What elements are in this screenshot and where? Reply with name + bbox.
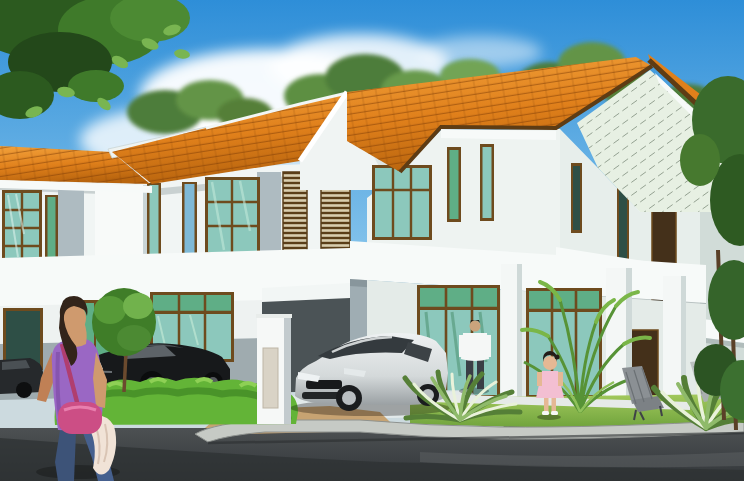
transom-glass (420, 288, 497, 307)
pilaster (58, 184, 84, 262)
girl-shoe (551, 411, 558, 415)
edge-car-wheel (16, 382, 32, 398)
girl-shoe (542, 411, 549, 415)
tree-canopy (680, 134, 720, 186)
gate-pillar: White gate pillar (256, 314, 292, 424)
sapling-trunk (124, 352, 126, 392)
man-arm (486, 335, 491, 357)
sapling-foliage (94, 296, 126, 324)
girl-leg (552, 396, 557, 412)
window-glass (48, 197, 56, 260)
girl-arm (558, 372, 563, 386)
silver-car-grille (306, 380, 342, 389)
man-arm (459, 335, 464, 357)
girl-hair-bun (555, 355, 560, 360)
window-glass (573, 166, 580, 230)
window-glass (483, 147, 492, 218)
window-glass (450, 150, 459, 219)
sapling-foliage (117, 325, 151, 351)
pillar-side (284, 318, 291, 424)
man-head (470, 321, 481, 332)
pilaster (257, 172, 281, 252)
blank-panel (95, 185, 147, 263)
sapling-foliage (123, 293, 153, 319)
man-shirt (461, 333, 489, 361)
pillar-cap (256, 314, 292, 318)
panel-shadow (143, 185, 147, 263)
rendering-canvas: Blue sky with scattered white clouds Whi… (0, 0, 744, 481)
edge-car: Dark car at the left edge (0, 358, 43, 398)
silver-car-alloy (342, 391, 356, 405)
girl-arm (537, 372, 542, 386)
figure-shadow (537, 414, 561, 420)
transom-glass (529, 291, 599, 309)
tree-foliage (68, 70, 124, 102)
window-glass (150, 185, 159, 255)
pillar-panel (263, 348, 278, 408)
window-glass (375, 168, 429, 237)
transom-glass (153, 295, 231, 311)
girl-leg (544, 396, 549, 412)
scene: Blue sky with scattered white clouds Whi… (0, 0, 744, 481)
window-glass (185, 184, 195, 253)
